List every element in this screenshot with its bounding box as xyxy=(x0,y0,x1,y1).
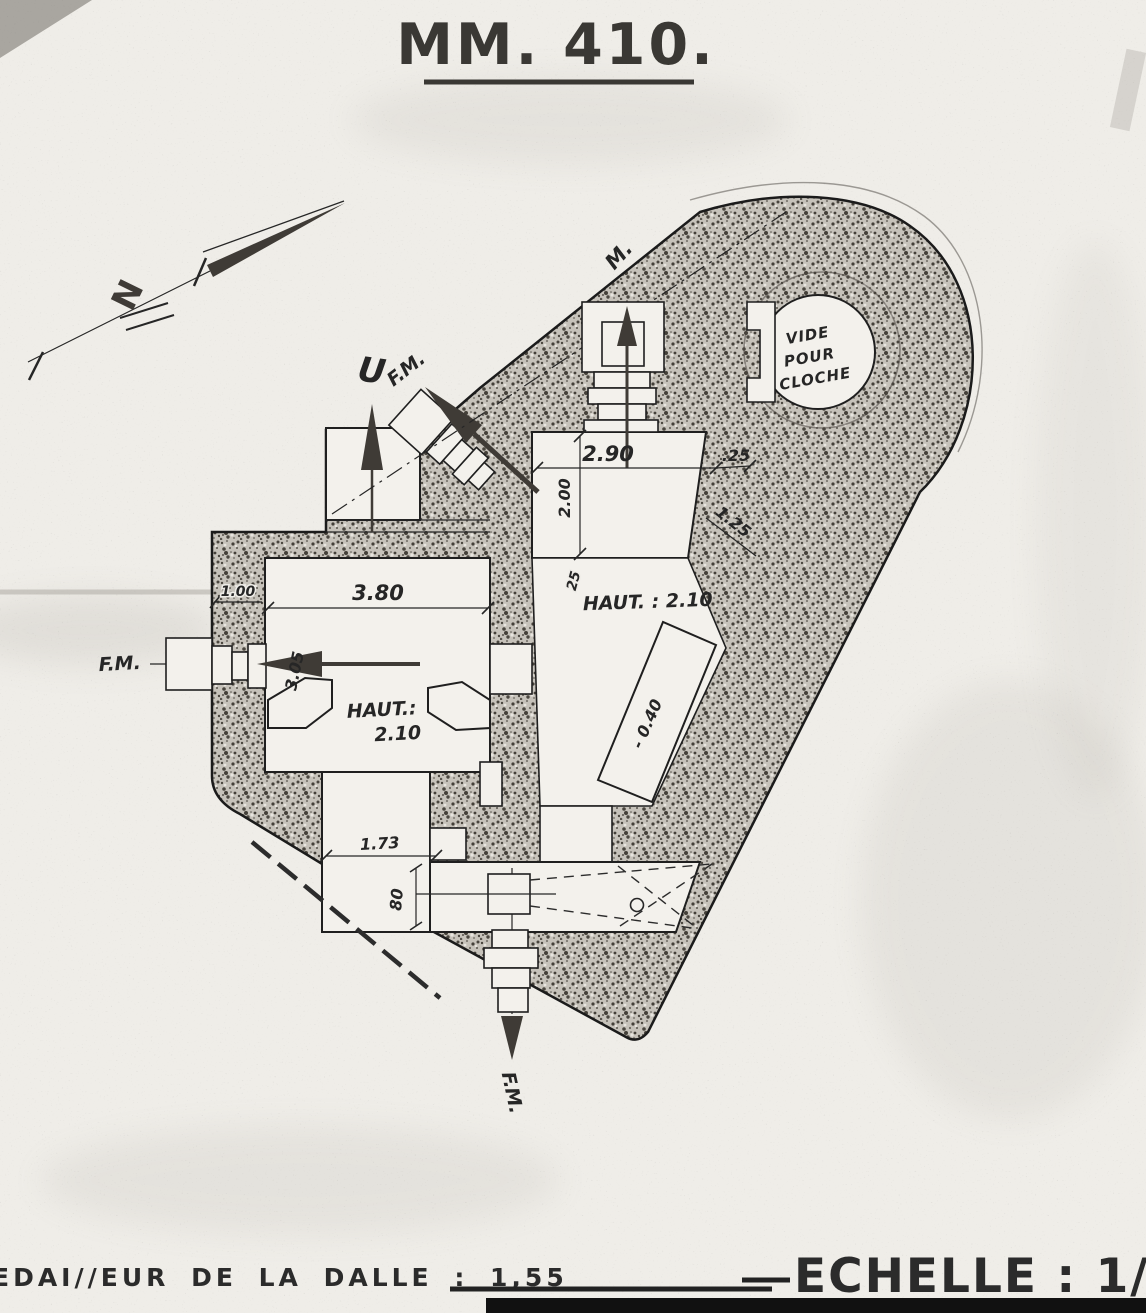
dim-200-label: 2.00 xyxy=(555,478,574,517)
haut-left-label-2: 2.10 xyxy=(374,722,422,746)
dim-80-label: 80 xyxy=(386,888,407,912)
scan-edge-bar xyxy=(486,1298,1146,1313)
small-niche xyxy=(430,828,466,860)
dim-290-label: 2.90 xyxy=(582,442,634,466)
dim-25top-label: .25 xyxy=(722,446,750,465)
corridor-right xyxy=(540,806,612,864)
fm-left-label: F.M. xyxy=(98,652,141,676)
haut-left-label-1: HAUT.: xyxy=(346,697,417,723)
dim-100-label: 1.00 xyxy=(221,584,256,600)
plan-drawing: MM. 410. N - 0.40 F.M. xyxy=(0,0,1146,1313)
dim-380-label: 3.80 xyxy=(352,581,404,605)
scanned-plan-page: MM. 410. N - 0.40 F.M. xyxy=(0,0,1146,1313)
doorway-between-rooms xyxy=(490,644,532,694)
plan-title: MM. 410. xyxy=(396,12,716,78)
bottom-chamber xyxy=(430,862,700,932)
dim-173-label: 1.73 xyxy=(359,833,399,854)
u-mark-label: U xyxy=(355,349,388,392)
scale-label: ECHELLE : 1/10 xyxy=(794,1249,1146,1304)
haut-right-label: HAUT. : 2.10 xyxy=(583,589,714,616)
door-niche xyxy=(480,762,502,806)
